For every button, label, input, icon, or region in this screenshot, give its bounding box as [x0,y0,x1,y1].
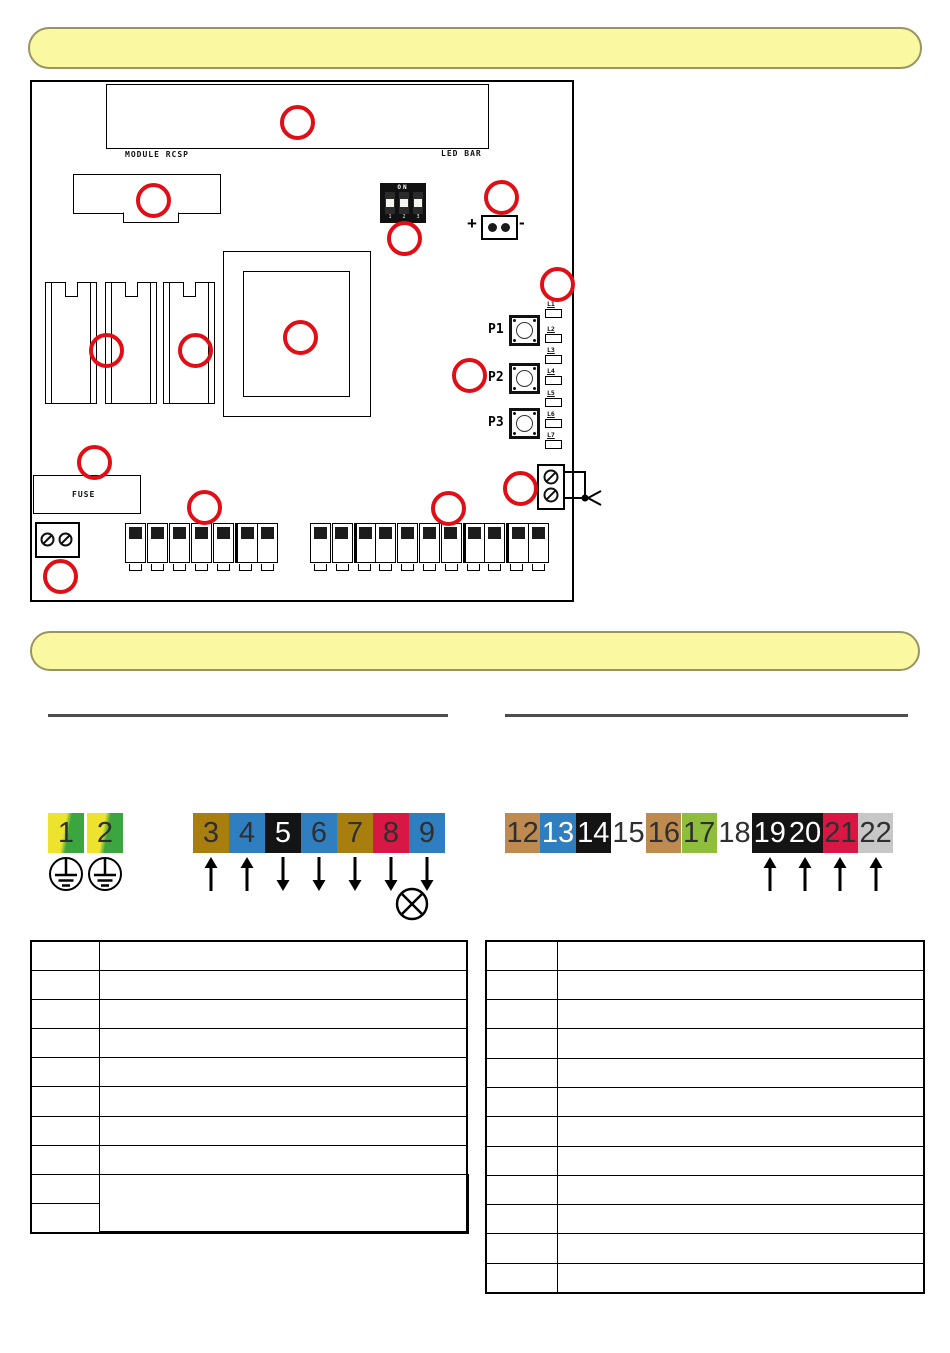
table-row [486,1117,924,1146]
screw-icon [40,532,55,547]
dip-switch-lever[interactable] [399,192,409,214]
module-rcsp-label: MODULE RCSP [125,150,189,159]
terminal-cell-5: 5 [265,813,301,896]
jumper-pin [501,223,510,232]
table-cell [557,1000,924,1029]
terminal-cell-18: 18 [717,813,752,853]
table-cell [31,1204,99,1233]
terminal-cell-7: 7 [337,813,373,896]
up-arrow-icon [868,857,884,891]
screw-terminal[interactable] [257,523,279,573]
screw-terminal[interactable] [354,523,376,573]
table-row [31,1087,467,1116]
callout-marker [43,559,78,594]
down-arrow-icon [347,857,363,891]
table-cell [31,1029,99,1058]
screw-terminal[interactable] [235,523,257,573]
terminal-cell-15: 15 [611,813,646,853]
table-cell [557,941,924,970]
terminal-cell-17: 17 [682,813,717,853]
terminal-cell-19: 19 [752,813,787,896]
terminal-cell-13: 13 [540,813,575,853]
table-cell [486,1263,557,1292]
led-l3: L3 [545,346,569,364]
table-cell [486,941,557,970]
led-label: L6 [547,410,569,418]
screw-terminal[interactable] [484,523,506,573]
table-cell [557,1234,924,1263]
table-cell [99,1029,467,1058]
table-cell [31,941,99,970]
table-row [486,1000,924,1029]
callout-marker [136,183,171,218]
table-cell [557,970,924,999]
terminal-cell-8: 8 [373,813,409,896]
button-label-p2: P2 [488,370,504,385]
callout-marker [77,445,112,480]
table-cell [486,1205,557,1234]
table-cell [486,1058,557,1087]
led-label: L5 [547,389,569,397]
callout-marker [283,320,318,355]
led-indicator [545,440,562,449]
terminal-cell-14: 14 [576,813,611,853]
lamp-symbol [394,886,430,927]
table-cell [31,1145,99,1174]
table-cell [99,941,467,970]
button-p2[interactable] [509,363,540,394]
led-bar-label: LED BAR [441,149,482,158]
table-row [486,1029,924,1058]
table-cell [99,1145,467,1174]
led-l5: L5 [545,389,569,407]
table-cell [31,1058,99,1087]
table-row [486,1205,924,1234]
down-arrow-icon [275,857,291,891]
up-arrow-icon [203,857,219,891]
terminal-description-table-left [30,940,469,1234]
table-cell [486,1087,557,1116]
callout-marker [89,333,124,368]
table-cell [557,1175,924,1204]
terminal-cell-9: 9 [409,813,445,896]
terminal-cell-1: 1 [48,813,84,853]
table-cell [557,1117,924,1146]
led-l1: L1 [545,300,569,318]
terminal-cell-3: 3 [193,813,229,896]
button-label-p1: P1 [488,322,504,337]
table-cell [557,1029,924,1058]
table-row [486,1087,924,1116]
led-label: L4 [547,367,569,375]
screw-terminal[interactable] [419,523,441,573]
up-arrow-icon [239,857,255,891]
table-row [31,1058,467,1087]
table-cell [31,1175,99,1204]
led-indicator [545,419,562,428]
screw-terminal[interactable] [125,523,147,573]
control-board-diagram: MODULE RCSP LED BAR ON 123 + - P1 P2 [30,80,574,602]
dip-number: 3 [413,214,423,220]
middle-title-banner [30,631,920,671]
led-label: L3 [547,346,569,354]
dip-switch-lever[interactable] [385,192,395,214]
up-arrow-icon [832,857,848,891]
callout-marker [187,490,222,525]
terminal-cell-4: 4 [229,813,265,896]
callout-marker [387,221,422,256]
screw-terminal[interactable] [332,523,354,573]
manual-page: { "banners": { "top": { "text": "" }, "m… [0,0,950,1353]
earth-ground-icon [87,856,123,892]
table-cell [31,1087,99,1116]
table-cell [486,1234,557,1263]
screw-terminal[interactable] [528,523,550,573]
table-row [31,999,467,1028]
screw-terminal[interactable] [375,523,397,573]
table-cell [486,1117,557,1146]
table-cell [99,970,467,999]
earth-symbol [87,856,123,897]
screw-terminal[interactable] [463,523,485,573]
screw-terminal[interactable] [397,523,419,573]
table-cell [557,1087,924,1116]
screw-terminal[interactable] [310,523,332,573]
up-arrow-icon [797,857,813,891]
callout-marker [431,491,466,526]
callout-marker [452,358,487,393]
screw-terminal[interactable] [506,523,528,573]
callout-marker [280,105,315,140]
table-cell [557,1263,924,1292]
wiring-terminal-legend: 1 2 3 4 5 6 7 8 [0,805,950,935]
table-row [486,1175,924,1204]
screw-icon [543,469,559,485]
table-cell [31,1116,99,1145]
terminal-cell-6: 6 [301,813,337,896]
jumper-plus-label: + [467,214,477,234]
antenna-terminal-block[interactable] [537,464,565,510]
table-row [486,1058,924,1087]
callout-marker [484,180,519,215]
dip-on-label: ON [380,184,426,191]
jumper-minus-label: - [519,213,525,233]
callout-marker [503,471,538,506]
table-cell [557,1205,924,1234]
down-arrow-icon [311,857,327,891]
callout-marker [178,333,213,368]
table-row [486,1234,924,1263]
button-p3[interactable] [509,408,540,439]
callout-marker [540,267,575,302]
screw-icon [543,487,559,503]
led-indicator [545,355,562,364]
dip-number: 1 [385,214,395,220]
relay [45,282,97,404]
button-label-p3: P3 [488,415,504,430]
jumper-connector[interactable] [481,215,518,240]
terminal-cell-12: 12 [505,813,540,853]
table-cell [31,999,99,1028]
screw-icon [58,532,73,547]
table-row [31,941,467,970]
top-title-banner [28,27,922,69]
terminal-description-table-right [485,940,925,1294]
led-indicator [545,376,562,385]
table-row [31,1116,467,1145]
table-row [31,1175,467,1204]
section-divider-right [505,714,908,717]
table-cell [557,1146,924,1175]
led-indicator [545,309,562,318]
table-row [486,970,924,999]
dip-switch[interactable]: ON 123 [380,183,426,223]
terminal-cell-21: 21 [823,813,858,896]
table-row [31,1029,467,1058]
table-cell [486,1175,557,1204]
led-indicator [545,398,562,407]
table-row [486,941,924,970]
table-cell [31,970,99,999]
screw-terminal[interactable] [147,523,169,573]
terminal-cell-22: 22 [858,813,893,896]
section-divider-left [48,714,448,717]
table-cell [99,1087,467,1116]
table-row [31,970,467,999]
led-label: L7 [547,431,569,439]
dip-switch-lever[interactable] [413,192,423,214]
table-cell [486,1146,557,1175]
screw-terminal[interactable] [441,523,463,573]
table-cell [557,1058,924,1087]
led-label: L2 [547,325,569,333]
table-cell [486,1029,557,1058]
earth-ground-icon [48,856,84,892]
power-terminal-block[interactable] [35,522,80,558]
led-indicator [545,334,562,343]
earth-symbol [48,856,84,897]
table-cell [99,1116,467,1145]
up-arrow-icon [762,857,778,891]
table-cell [486,970,557,999]
table-row [31,1145,467,1174]
led-l6: L6 [545,410,569,428]
lamp-icon [394,886,430,922]
antenna-icon [563,462,605,510]
table-cell [99,1058,467,1087]
button-p1[interactable] [509,315,540,346]
jumper-pin [488,223,497,232]
screw-terminal[interactable] [191,523,213,573]
dip-number: 2 [399,214,409,220]
table-cell-merged [99,1175,467,1233]
screw-terminal[interactable] [169,523,191,573]
fuse-label: FUSE [72,490,95,499]
terminal-cell-16: 16 [646,813,681,853]
table-cell [99,999,467,1028]
table-cell [486,1000,557,1029]
led-l4: L4 [545,367,569,385]
terminal-cell-20: 20 [787,813,822,896]
terminal-cell-2: 2 [87,813,123,853]
led-l7: L7 [545,431,569,449]
led-l2: L2 [545,325,569,343]
table-row [486,1263,924,1292]
screw-terminal[interactable] [213,523,235,573]
table-row [486,1146,924,1175]
